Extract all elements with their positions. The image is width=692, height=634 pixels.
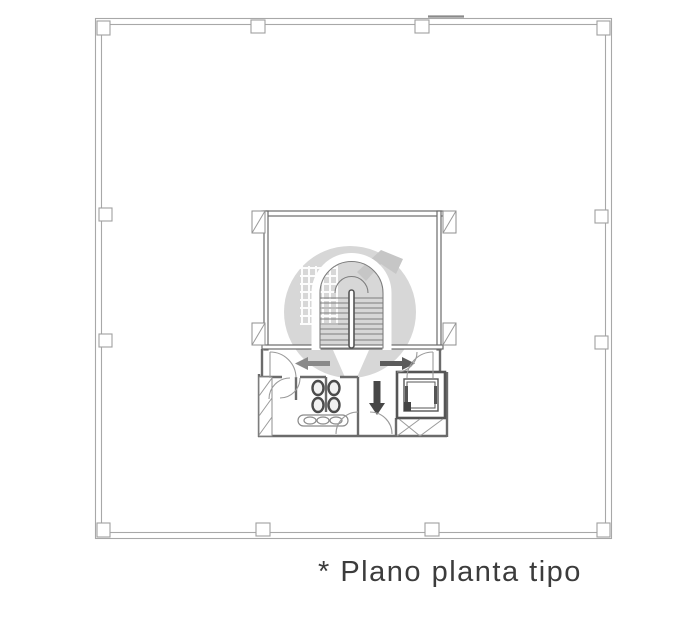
elevator-pit-hatch: [397, 419, 443, 436]
stair-spine-wall: [349, 290, 354, 348]
toilet-icon: [329, 398, 340, 412]
toilet-icon: [329, 381, 340, 395]
toilet-icon: [313, 381, 324, 395]
elevator: [397, 372, 445, 436]
arrow-down-icon: [369, 381, 385, 415]
restroom: [298, 381, 348, 426]
toilet-icon: [313, 398, 324, 412]
service-shaft: [259, 377, 272, 436]
plan-caption: * Plano planta tipo: [318, 556, 618, 589]
floor-plan-canvas: * Plano planta tipo: [0, 0, 692, 634]
